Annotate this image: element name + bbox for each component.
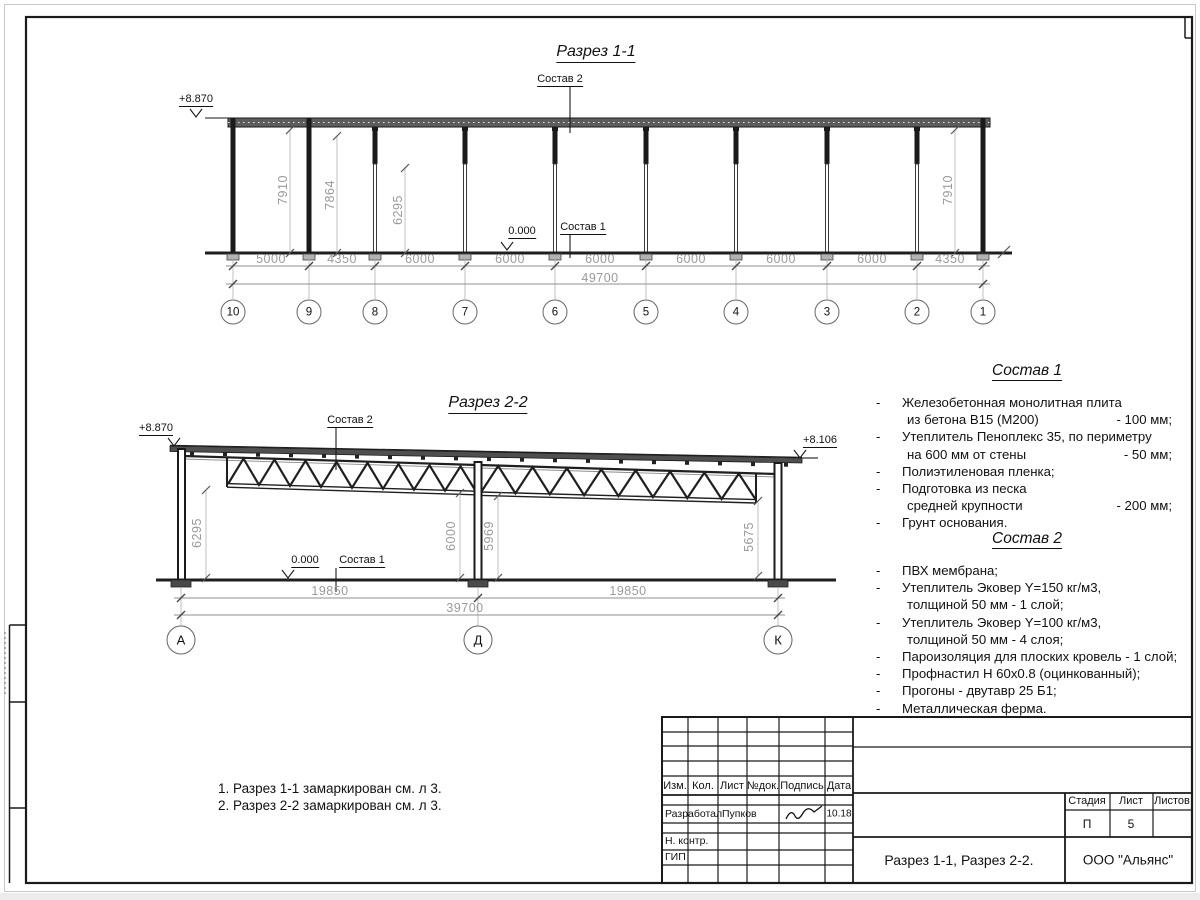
grid-bubble: 8 xyxy=(363,300,388,325)
sostav2-list: Состав 2 -ПВХ мембрана; -Утеплитель Эков… xyxy=(876,530,1178,717)
titleblock-header-podpis: Подпись xyxy=(780,780,824,792)
titleblock-razrabotal-date: 10.18 xyxy=(826,809,851,820)
height-dim: 5675 xyxy=(742,522,756,552)
grid-bubble: А xyxy=(167,626,196,655)
bay-dim: 5000 xyxy=(256,252,286,266)
bay-dim: 4350 xyxy=(935,252,965,266)
section-1-1-title: Разрез 1-1 xyxy=(556,43,635,63)
sostav2-callout-1: Состав 2 xyxy=(537,73,583,87)
bay-dim: 6000 xyxy=(766,252,796,266)
grid-bubble: 6 xyxy=(543,300,568,325)
titleblock-header-data: Дата xyxy=(827,780,851,792)
titleblock-header-ndok: №док. xyxy=(747,780,779,792)
height-dim: 7910 xyxy=(941,175,955,205)
grid-bubble: 1 xyxy=(971,300,996,325)
list-item: -Утеплитель Эковер Y=100 кг/м3, xyxy=(876,614,1178,631)
titleblock-listov-label: Листов xyxy=(1154,795,1190,807)
grid-bubble: 5 xyxy=(634,300,659,325)
list-item: -Профнастил Н 60х0.8 (оцинкованный); xyxy=(876,665,1178,682)
level-mark-right-2: +8.106 xyxy=(803,434,837,448)
titleblock-stadia-label: Стадия xyxy=(1068,795,1106,807)
level-mark-zero-1: 0.000 xyxy=(508,225,536,239)
height-dim: 6295 xyxy=(391,195,405,225)
titleblock-company: ООО "Альянс" xyxy=(1083,853,1173,868)
section-1-1-drawing xyxy=(190,87,1012,299)
list-item: -Пароизоляция для плоских кровель - 1 сл… xyxy=(876,648,1178,665)
bay-dim: 6000 xyxy=(857,252,887,266)
list-item: -Утеплитель Пеноплекс 35, по периметру xyxy=(876,428,1178,445)
total-dim-2: 39700 xyxy=(446,601,483,615)
level-mark-zero-2: 0.000 xyxy=(291,554,319,568)
drawing-sheet: Разрез 1-1 Состав 2 Состав 1 +8.870 0.00… xyxy=(0,0,1200,900)
list-item: -ПВХ мембрана; xyxy=(876,562,1178,579)
bay-dim: 6000 xyxy=(495,252,525,266)
section-2-2-title: Разрез 2-2 xyxy=(448,394,527,414)
sheet-notes: 1. Разрез 1-1 замаркирован см. л 3. 2. Р… xyxy=(218,780,442,814)
sostav1-callout-1: Состав 1 xyxy=(560,221,606,235)
list-item: -Металлическая ферма. xyxy=(876,700,1178,717)
titleblock-nkontr-label: Н. контр. xyxy=(665,835,708,847)
grid-bubble: 10 xyxy=(221,300,246,325)
span-dim: 19850 xyxy=(311,584,348,598)
span-dim: 19850 xyxy=(609,584,646,598)
sostav1-list: Состав 1 -Железобетонная монолитная плит… xyxy=(876,362,1178,532)
titleblock-gip-label: ГИП xyxy=(665,851,686,863)
titleblock-header-kol: Кол. xyxy=(692,780,714,792)
list-item: -Утеплитель Эковер Y=150 кг/м3, xyxy=(876,579,1178,596)
sostav1-callout-2: Состав 1 xyxy=(339,554,385,568)
grid-bubble: 9 xyxy=(297,300,322,325)
height-dim: 6295 xyxy=(190,518,204,548)
grid-bubble: 2 xyxy=(905,300,930,325)
list-item: -Прогоны - двутавр 25 Б1; xyxy=(876,682,1178,699)
total-dim-1: 49700 xyxy=(581,271,618,285)
sostav1-title: Состав 1 xyxy=(876,362,1178,380)
note-line: 2. Разрез 2-2 замаркирован см. л 3. xyxy=(218,797,442,814)
signature xyxy=(786,806,822,819)
bay-dim: 4350 xyxy=(327,252,357,266)
list-item: толщиной 50 мм - 1 слой; xyxy=(876,596,1178,613)
height-dim: 5969 xyxy=(482,521,496,551)
bay-dim: 6000 xyxy=(676,252,706,266)
list-item: толщиной 50 мм - 4 слоя; xyxy=(876,631,1178,648)
section-2-2-drawing xyxy=(156,428,836,627)
titleblock-list-value: 5 xyxy=(1128,817,1135,831)
titleblock-stadia-value: П xyxy=(1083,817,1092,831)
height-dim: 7910 xyxy=(276,175,290,205)
grid-bubble: 7 xyxy=(453,300,478,325)
titleblock-razrabotal-name: Пупков xyxy=(722,808,757,820)
level-mark-left-2: +8.870 xyxy=(139,422,173,436)
titleblock-header-list: Лист xyxy=(720,780,744,792)
list-item: из бетона В15 (М200)- 100 мм; xyxy=(876,411,1178,428)
titleblock-razrabotal-label: Разработал xyxy=(665,808,722,820)
list-item: -Полиэтиленовая пленка; xyxy=(876,463,1178,480)
level-mark-top-1: +8.870 xyxy=(179,93,213,107)
list-item: -Железобетонная монолитная плита xyxy=(876,394,1178,411)
titleblock-header-izm: Изм. xyxy=(663,780,687,792)
height-dim: 7864 xyxy=(323,180,337,210)
grid-bubble: 4 xyxy=(724,300,749,325)
list-item: на 600 мм от стены- 50 мм; xyxy=(876,446,1178,463)
grid-bubble: К xyxy=(764,626,793,655)
list-item: средней крупности- 200 мм; xyxy=(876,497,1178,514)
sostav2-callout-2: Состав 2 xyxy=(327,414,373,428)
grid-bubble: Д xyxy=(464,626,493,655)
titleblock-doc-title: Разрез 1-1, Разрез 2-2. xyxy=(884,852,1033,868)
list-item: -Подготовка из песка xyxy=(876,480,1178,497)
height-dim: 6000 xyxy=(444,521,458,551)
bay-dim: 6000 xyxy=(585,252,615,266)
bay-dim: 6000 xyxy=(405,252,435,266)
sostav2-title: Состав 2 xyxy=(876,530,1178,548)
note-line: 1. Разрез 1-1 замаркирован см. л 3. xyxy=(218,780,442,797)
titleblock-list-label: Лист xyxy=(1119,795,1143,807)
grid-bubble: 3 xyxy=(815,300,840,325)
